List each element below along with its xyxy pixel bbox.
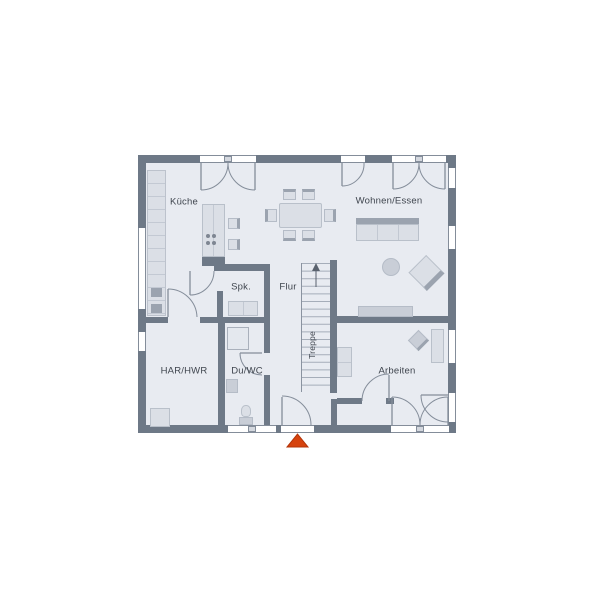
washbasin <box>226 379 238 393</box>
pantry-shelf-divider <box>243 302 244 315</box>
round-side-table <box>382 258 400 276</box>
toilet-cistern <box>239 417 253 425</box>
kitchen-island <box>202 204 225 257</box>
room-label-du-wc: Du/WC <box>231 366 263 377</box>
entrance-opening <box>281 425 314 433</box>
entrance-arrow-icon <box>287 434 308 447</box>
wall-wohnen-arbeiten <box>337 316 448 323</box>
sideboard <box>358 306 413 317</box>
wall-entry-stub <box>337 398 362 404</box>
room-label-flur: Flur <box>279 282 296 293</box>
window-arbeiten-right <box>448 330 456 363</box>
sofa-seat <box>356 224 419 241</box>
shelf <box>431 329 444 363</box>
room-label-spk: Spk. <box>231 282 251 293</box>
utility-appliance <box>150 408 170 427</box>
wall-duwc-flur-lower <box>264 375 270 425</box>
cooktop-burner <box>206 241 210 245</box>
door-arbeiten-right <box>448 393 456 422</box>
sofa-cushion-divider <box>398 225 399 240</box>
wall-exterior-right <box>448 155 456 433</box>
dining-chair <box>283 230 296 241</box>
cooktop-burner <box>212 241 216 245</box>
kitchen-appliance-oven <box>151 288 162 297</box>
island-divider <box>213 205 214 256</box>
dining-chair <box>302 230 315 241</box>
room-label-treppe: Treppe <box>307 331 317 359</box>
dining-table <box>279 203 322 228</box>
room-label-kueche: Küche <box>170 197 198 208</box>
bar-chair <box>228 239 240 250</box>
pantry-shelf <box>228 301 258 316</box>
room-label-har-hwr: HAR/HWR <box>161 366 208 377</box>
door-handle <box>224 156 232 162</box>
dining-chair <box>265 209 277 222</box>
toilet-bowl <box>241 405 251 417</box>
door-handle <box>415 156 423 162</box>
wall-har-top-left <box>146 317 168 323</box>
door-handle <box>416 426 424 432</box>
floor-plan: Küche Wohnen/Essen Spk. Flur Treppe HAR/… <box>0 0 600 600</box>
cooktop-burner <box>212 234 216 238</box>
wall-entry-stub2 <box>386 398 394 404</box>
window-wohnen-right <box>448 226 456 249</box>
room-label-wohnen-essen: Wohnen/Essen <box>356 196 423 207</box>
wall-spk-left <box>217 291 223 317</box>
dining-chair <box>324 209 336 222</box>
desk <box>337 347 352 377</box>
window-har-left <box>138 332 146 351</box>
door-wohnen-top <box>341 155 365 163</box>
cooktop-burner <box>206 234 210 238</box>
wall-stair-right <box>330 260 337 393</box>
dining-chair <box>283 189 296 200</box>
window-handle <box>248 426 256 432</box>
window-kueche-left <box>138 228 146 309</box>
dining-chair <box>302 189 315 200</box>
shower <box>227 327 249 350</box>
window-wohnen-right-top <box>448 168 456 188</box>
wall-spk-flur-upper <box>264 264 270 353</box>
desk-divider <box>338 362 351 363</box>
wall-har-top-right <box>200 317 268 323</box>
kitchen-appliance-fridge <box>151 304 162 313</box>
wall-har-duwc <box>218 317 225 425</box>
bar-chair <box>228 218 240 229</box>
sofa-cushion-divider <box>377 225 378 240</box>
wall-spk-top <box>214 264 270 271</box>
room-label-arbeiten: Arbeiten <box>379 366 416 377</box>
